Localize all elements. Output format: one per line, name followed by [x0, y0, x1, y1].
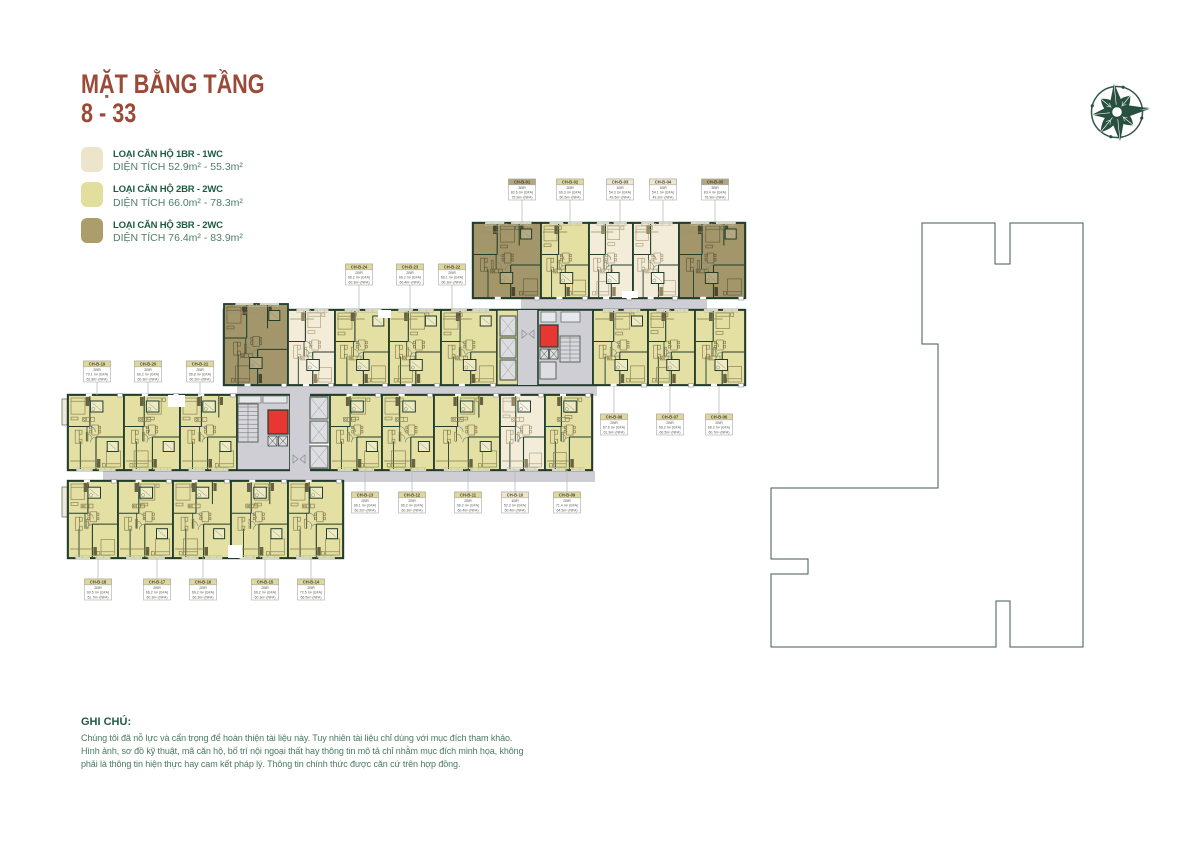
svg-text:66.2 m² (GFA): 66.2 m² (GFA) [137, 373, 159, 377]
svg-text:2BR: 2BR [144, 367, 152, 372]
svg-text:1BR: 1BR [616, 185, 624, 190]
svg-text:2BR: 2BR [610, 420, 618, 425]
svg-text:60.2m² (NFA): 60.2m² (NFA) [354, 508, 375, 512]
svg-text:CH-B-19: CH-B-19 [89, 362, 106, 367]
svg-text:CH-B-24: CH-B-24 [351, 265, 368, 270]
svg-text:61.9m² (NFA): 61.9m² (NFA) [603, 430, 624, 434]
svg-text:CH-B-20: CH-B-20 [140, 362, 157, 367]
svg-text:2BR: 2BR [408, 498, 416, 503]
svg-text:60.2m² (NFA): 60.2m² (NFA) [189, 377, 210, 381]
svg-text:CH-B-18: CH-B-18 [90, 580, 107, 585]
svg-text:60.4m² (NFA): 60.4m² (NFA) [399, 280, 420, 284]
svg-text:67.6 m² (GFA): 67.6 m² (GFA) [603, 426, 625, 430]
svg-text:50.4m² (NFA): 50.4m² (NFA) [504, 508, 525, 512]
svg-text:3BR: 3BR [711, 185, 719, 190]
svg-text:60.4m² (NFA): 60.4m² (NFA) [457, 508, 478, 512]
svg-text:CH-B-07: CH-B-07 [662, 415, 679, 420]
svg-text:2BR: 2BR [261, 585, 269, 590]
svg-text:CH-B-12: CH-B-12 [404, 493, 421, 498]
svg-text:83.4 m² (GFA): 83.4 m² (GFA) [704, 191, 726, 195]
svg-text:CH-B-01: CH-B-01 [514, 180, 531, 185]
svg-text:66.2 m² (GFA): 66.2 m² (GFA) [192, 591, 214, 595]
svg-text:1BR: 1BR [511, 498, 519, 503]
svg-text:3BR: 3BR [518, 185, 526, 190]
svg-text:CH-B-10: CH-B-10 [507, 493, 524, 498]
svg-text:60.7m² (NFA): 60.7m² (NFA) [708, 430, 729, 434]
svg-text:61.7m² (NFA): 61.7m² (NFA) [87, 595, 108, 599]
svg-text:CH-B-22: CH-B-22 [444, 265, 461, 270]
svg-text:82.6 m² (GFA): 82.6 m² (GFA) [511, 191, 533, 195]
svg-text:71.4 m² (GFA): 71.4 m² (GFA) [556, 504, 578, 508]
svg-text:CH-B-23: CH-B-23 [402, 265, 419, 270]
svg-text:49.2m² (NFA): 49.2m² (NFA) [652, 195, 673, 199]
svg-text:CH-B-14: CH-B-14 [303, 580, 320, 585]
svg-text:66.1 m² (GFA): 66.1 m² (GFA) [441, 276, 463, 280]
svg-text:60.3m² (NFA): 60.3m² (NFA) [192, 595, 213, 599]
svg-text:66.8 m² (GFA): 66.8 m² (GFA) [189, 373, 211, 377]
svg-text:CH-B-17: CH-B-17 [149, 580, 166, 585]
svg-text:54.1 m² (GFA): 54.1 m² (GFA) [652, 191, 674, 195]
svg-text:CH-B-04: CH-B-04 [655, 180, 672, 185]
svg-text:CH-B-09: CH-B-09 [559, 493, 576, 498]
svg-text:60.5m² (NFA): 60.5m² (NFA) [559, 195, 580, 199]
svg-text:75.9m² (NFA): 75.9m² (NFA) [511, 195, 532, 199]
svg-text:CH-B-08: CH-B-08 [606, 415, 623, 420]
svg-text:70.1 m² (GFA): 70.1 m² (GFA) [86, 373, 108, 377]
svg-text:60.5m² (NFA): 60.5m² (NFA) [659, 430, 680, 434]
svg-text:66.5m² (NFA): 66.5m² (NFA) [300, 595, 321, 599]
svg-text:54.3 m² (GFA): 54.3 m² (GFA) [609, 191, 631, 195]
svg-text:66.2 m² (GFA): 66.2 m² (GFA) [401, 504, 423, 508]
svg-text:CH-B-03: CH-B-03 [612, 180, 629, 185]
svg-text:2BR: 2BR [566, 185, 574, 190]
svg-text:64.5m² (NFA): 64.5m² (NFA) [556, 508, 577, 512]
svg-text:2BR: 2BR [94, 585, 102, 590]
svg-text:76.9m² (NFA): 76.9m² (NFA) [704, 195, 725, 199]
svg-text:69.5 m² (GFA): 69.5 m² (GFA) [87, 591, 109, 595]
svg-text:66.2 m² (GFA): 66.2 m² (GFA) [457, 504, 479, 508]
svg-text:CH-B-21: CH-B-21 [192, 362, 209, 367]
svg-text:49.5m² (NFA): 49.5m² (NFA) [609, 195, 630, 199]
svg-text:66.2 m² (GFA): 66.2 m² (GFA) [708, 426, 730, 430]
svg-text:60.3m² (NFA): 60.3m² (NFA) [137, 377, 158, 381]
svg-text:72.5 m² (GFA): 72.5 m² (GFA) [300, 591, 322, 595]
svg-text:2BR: 2BR [307, 585, 315, 590]
svg-text:62.8m² (NFA): 62.8m² (NFA) [86, 377, 107, 381]
svg-text:CH-B-15: CH-B-15 [257, 580, 274, 585]
svg-text:CH-B-11: CH-B-11 [460, 493, 477, 498]
svg-text:66.2 m² (GFA): 66.2 m² (GFA) [146, 591, 168, 595]
svg-text:CH-B-13: CH-B-13 [357, 493, 374, 498]
svg-text:1BR: 1BR [659, 185, 667, 190]
svg-text:2BR: 2BR [464, 498, 472, 503]
svg-text:2BR: 2BR [406, 270, 414, 275]
svg-text:60.3m² (NFA): 60.3m² (NFA) [348, 280, 369, 284]
svg-text:66.2 m² (GFA): 66.2 m² (GFA) [659, 426, 681, 430]
svg-text:66.2 m² (GFA): 66.2 m² (GFA) [399, 276, 421, 280]
svg-text:52.3 m² (GFA): 52.3 m² (GFA) [504, 504, 526, 508]
svg-text:2BR: 2BR [563, 498, 571, 503]
svg-text:2BR: 2BR [93, 367, 101, 372]
svg-text:2BR: 2BR [153, 585, 161, 590]
svg-text:60.3m² (NFA): 60.3m² (NFA) [254, 595, 275, 599]
svg-text:CH-B-06: CH-B-06 [711, 415, 728, 420]
svg-text:CH-B-05: CH-B-05 [707, 180, 724, 185]
svg-text:2BR: 2BR [355, 270, 363, 275]
svg-text:66.2 m² (GFA): 66.2 m² (GFA) [348, 276, 370, 280]
svg-text:66.2 m² (GFA): 66.2 m² (GFA) [254, 591, 276, 595]
svg-text:2BR: 2BR [199, 585, 207, 590]
svg-text:CH-B-16: CH-B-16 [195, 580, 212, 585]
svg-text:2BR: 2BR [448, 270, 456, 275]
svg-text:60.3m² (NFA): 60.3m² (NFA) [401, 508, 422, 512]
svg-text:66.1 m² (GFA): 66.1 m² (GFA) [354, 504, 376, 508]
svg-text:66.3 m² (GFA): 66.3 m² (GFA) [559, 191, 581, 195]
svg-text:2BR: 2BR [715, 420, 723, 425]
svg-text:2BR: 2BR [196, 367, 204, 372]
svg-text:2BR: 2BR [666, 420, 674, 425]
svg-text:CH-B-02: CH-B-02 [562, 180, 579, 185]
svg-text:60.3m² (NFA): 60.3m² (NFA) [441, 280, 462, 284]
svg-text:60.3m² (NFA): 60.3m² (NFA) [146, 595, 167, 599]
svg-text:2BR: 2BR [361, 498, 369, 503]
